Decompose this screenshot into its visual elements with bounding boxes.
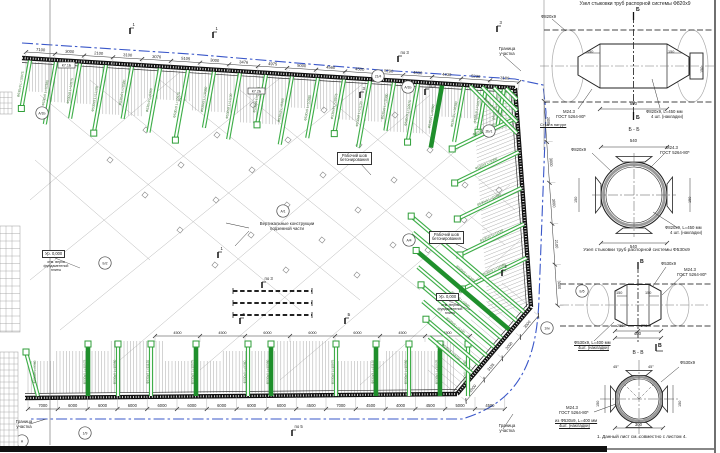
vertical-structures-label: Вертикальные конструкции подземной части [250,221,324,231]
svg-text:5000: 5000 [297,63,307,69]
svg-text:5105: 5105 [181,56,191,62]
detail-820-sec-plate-line2: 4 шт. (накладки) [670,230,702,235]
svg-text:Ф530х9 L=10380: Ф530х9 L=10380 [404,360,408,385]
detail-820-dim-500: 500 [625,101,642,106]
detail-530-section-letter-bottom: В [658,343,662,349]
svg-text:4500: 4500 [307,403,317,408]
svg-text:А/4: А/4 [406,238,411,242]
svg-text:2100: 2100 [94,50,104,56]
svg-text:4500: 4500 [173,331,181,335]
site-boundary-label-bottom-right: Граница участка [492,423,522,433]
detail-530-title: Узел стыковки труб распорной системы Ф53… [558,248,715,254]
detail-530-dim-300: 300 [629,422,648,427]
svg-text:6000: 6000 [263,331,271,335]
svg-text:А/1: А/1 [280,209,285,213]
svg-text:21/4: 21/4 [375,74,382,78]
svg-text:3135: 3135 [486,362,495,372]
detail-530-dim-150-right: 150 [678,401,682,407]
svg-text:2Б/1: 2Б/1 [486,129,493,133]
svg-text:Ф530х9 L=10975: Ф530х9 L=10975 [435,360,439,385]
detail-820-title: Узел стыковки труб распорной системы Ф82… [556,2,714,8]
level-mark-2: Ур. 0,000 [436,293,459,301]
svg-text:5000: 5000 [456,403,466,408]
svg-text:1: 1 [216,26,219,31]
detail-530-angle-a: 45° [613,365,619,369]
site-boundary-label-top: Граница участка [492,46,522,56]
svg-text:3000: 3000 [65,49,75,55]
svg-text:4500: 4500 [366,403,376,408]
svg-text:Б/5: Б/5 [579,289,584,293]
svg-text:4560: 4560 [326,65,336,71]
detail-820-dim-150-a: 150 [587,50,593,54]
drawing-sheet: 7100300021003100307651053000347649755000… [0,0,720,453]
svg-text:Ф530х9 L=10975: Ф530х9 L=10975 [83,360,87,385]
svg-text:3: 3 [500,20,503,25]
detail-820-dim-150-plate: 150 [700,67,704,73]
level-mark-1-sub: отм. верха фундаментной плиты [38,260,74,273]
svg-text:4500: 4500 [218,331,226,335]
svg-text:3000: 3000 [210,57,220,63]
detail-530-dim-150-b: 150 [645,291,651,295]
detail-530-dim-250-a: 250 [617,324,623,328]
detail-820-dim-540-top: 540 [625,138,642,143]
svg-text:4500: 4500 [485,403,495,408]
work-joint-label-1: Рабочий шов бетонирования [337,152,372,165]
svg-text:6000: 6000 [98,403,108,408]
detail-530-plate-line2: 4шт. (накладки) [578,345,609,350]
svg-text:6000: 6000 [158,403,168,408]
svg-text:Б/2: Б/2 [102,261,107,265]
detail-530-weld-line2: ГОСТ 5264-80* [677,272,707,277]
svg-text:6000: 6000 [353,331,361,335]
detail-820-sec-pipe-label: Ф820х9 [571,147,586,152]
detail-530-angle-b: 45° [648,365,654,369]
svg-text:3076: 3076 [152,54,162,60]
svg-text:Ф530х9 L=10975: Ф530х9 L=10975 [331,360,335,385]
svg-text:6000: 6000 [308,331,316,335]
detail-530-section-letter-top: В [640,259,644,265]
detail-820-section-caption: Б - Б [621,128,647,134]
svg-text:6000: 6000 [247,403,257,408]
svg-text:6000: 6000 [68,403,78,408]
svg-text:по 3: по 3 [428,83,437,88]
site-boundary-label-bottom-left: Граница участка [9,419,39,429]
work-joint-label-2: Рабочий шов бетонирования [429,231,464,244]
detail-530-dim-250-b: 250 [641,324,647,328]
svg-text:3000: 3000 [551,199,557,209]
svg-text:6000: 6000 [128,403,138,408]
svg-text:3000: 3000 [549,158,555,168]
detail-530-dim-150-left: 150 [596,401,600,407]
svg-text:А/1Б: А/1Б [38,111,46,115]
svg-text:А/1Б: А/1Б [404,85,412,89]
svg-text:4500: 4500 [398,331,406,335]
svg-text:Ф530х9 L=11120: Ф530х9 L=11120 [146,360,150,384]
detail-530-sec-weld-line4: 4шт. (накладки) [559,423,590,428]
svg-text:7000: 7000 [336,403,346,408]
svg-text:К7.1Б: К7.1Б [62,64,72,68]
detail-820-section-letter-top: Б [636,7,640,13]
svg-text:3000: 3000 [557,280,563,290]
svg-text:3000: 3000 [504,340,514,350]
sheet-note: 1. Данный лист см. совместно с листом 4. [597,434,687,439]
svg-text:Ф530х9 L=10975: Ф530х9 L=10975 [191,360,195,385]
svg-text:3000: 3000 [522,319,532,329]
level-mark-2-sub: отм. верха фундаментной плиты [432,303,468,316]
detail-820-dim-150-right: 150 [688,197,692,203]
detail-820-dim-150-left: 150 [574,197,578,203]
svg-text:3476: 3476 [239,59,249,65]
svg-text:Ф530х9 L=10380: Ф530х9 L=10380 [266,360,270,385]
svg-text:3180: 3180 [500,75,510,81]
svg-text:Б: Б [243,312,246,317]
svg-text:7100: 7100 [36,47,46,53]
detail-820-pipe-label: Ф820х9 [541,14,556,19]
detail-820-dim-150-b: 150 [668,50,674,54]
svg-text:1/9: 1/9 [83,431,88,435]
svg-text:по 3: по 3 [265,276,274,281]
detail-530-section-caption: В - В [625,351,651,357]
detail-820-section-letter-bottom: Б [636,115,640,121]
svg-text:1: 1 [133,22,136,27]
svg-text:5230: 5230 [471,73,481,79]
svg-text:3100: 3100 [123,52,133,58]
svg-text:Ф530х9 L=9360: Ф530х9 L=9360 [33,360,37,383]
detail-820-sec-weld-line2: ГОСТ 5264-80* [660,150,690,155]
svg-text:4430: 4430 [442,72,452,78]
detail-530-sec-pipe-label: Ф530х9 [680,360,695,365]
svg-text:Ф530х9 L=9360: Ф530х9 L=9360 [243,360,247,383]
svg-text:4530: 4530 [413,70,423,76]
svg-text:Ф530х9 L=11120: Ф530х9 L=11120 [371,360,375,384]
svg-text:6000: 6000 [217,403,227,408]
detail-530-dim-150-a: 150 [616,291,622,295]
detail-530-sec-weld-line2: ГОСТ 5264-80* [559,410,589,415]
svg-text:4000: 4000 [396,403,406,408]
svg-text:5290: 5290 [384,68,394,74]
svg-text:4975: 4975 [268,61,278,67]
detail-820-plate-line2: 4 шт. (накладки) [651,114,683,119]
level-mark-1: Ур. 0,000 [42,250,65,258]
svg-text:1/м: 1/м [544,326,550,330]
svg-text:1: 1 [221,246,224,251]
svg-text:4500: 4500 [426,403,436,408]
svg-text:6000: 6000 [277,403,287,408]
svg-text:К7.2Б: К7.2Б [252,90,262,94]
detail-530-dim-400: 400 [629,331,646,336]
detail-820-joint-note: Стык в натуре [540,123,566,128]
svg-text:7000: 7000 [38,403,48,408]
detail-820-weld-line2: ГОСТ 5264-80* [556,114,586,119]
plan-drawing: 7100300021003100307651053000347649755000… [0,0,720,453]
detail-530-pipe-label: Ф530х9 [661,261,676,266]
svg-text:по 3: по 3 [401,50,410,55]
svg-text:Ф530х9 L=10380: Ф530х9 L=10380 [113,360,117,385]
svg-text:6000: 6000 [187,403,197,408]
svg-text:по 5: по 5 [295,424,304,429]
svg-text:4500: 4500 [355,66,365,72]
svg-text:Б: Б [348,312,351,317]
